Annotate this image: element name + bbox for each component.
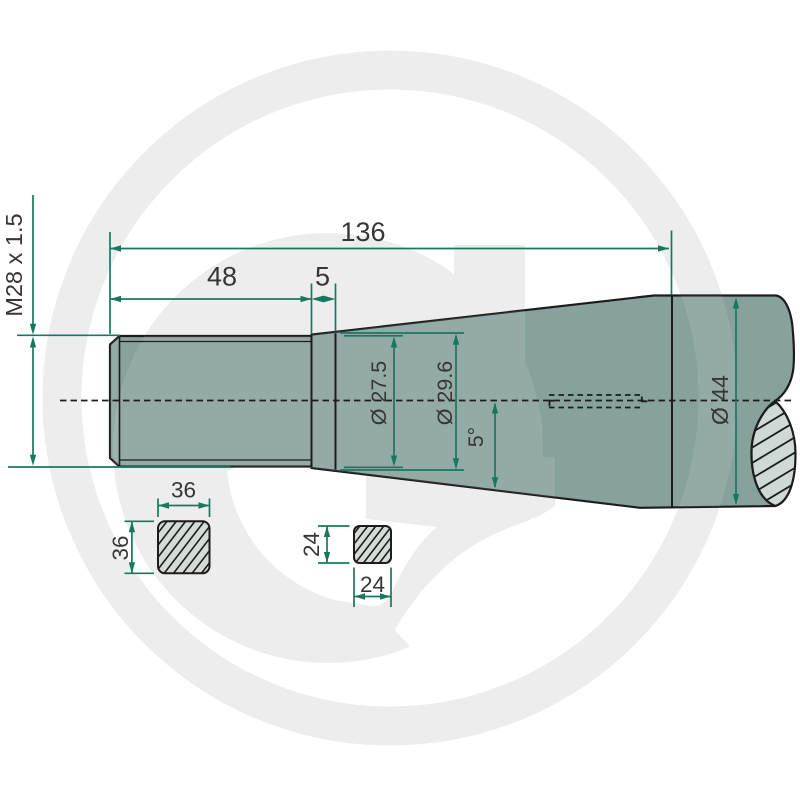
svg-text:Ø 44: Ø 44 (707, 375, 733, 425)
svg-text:36: 36 (171, 478, 196, 503)
svg-text:136: 136 (340, 217, 385, 247)
svg-text:24: 24 (360, 572, 385, 597)
svg-text:36: 36 (108, 535, 133, 560)
svg-text:5°: 5° (464, 427, 488, 448)
svg-text:48: 48 (207, 262, 237, 292)
svg-text:Ø 27.5: Ø 27.5 (367, 361, 391, 426)
svg-text:24: 24 (299, 532, 324, 557)
svg-text:M28 x 1.5: M28 x 1.5 (1, 213, 27, 316)
svg-text:Ø 29.6: Ø 29.6 (433, 361, 457, 426)
svg-text:5: 5 (315, 262, 330, 292)
